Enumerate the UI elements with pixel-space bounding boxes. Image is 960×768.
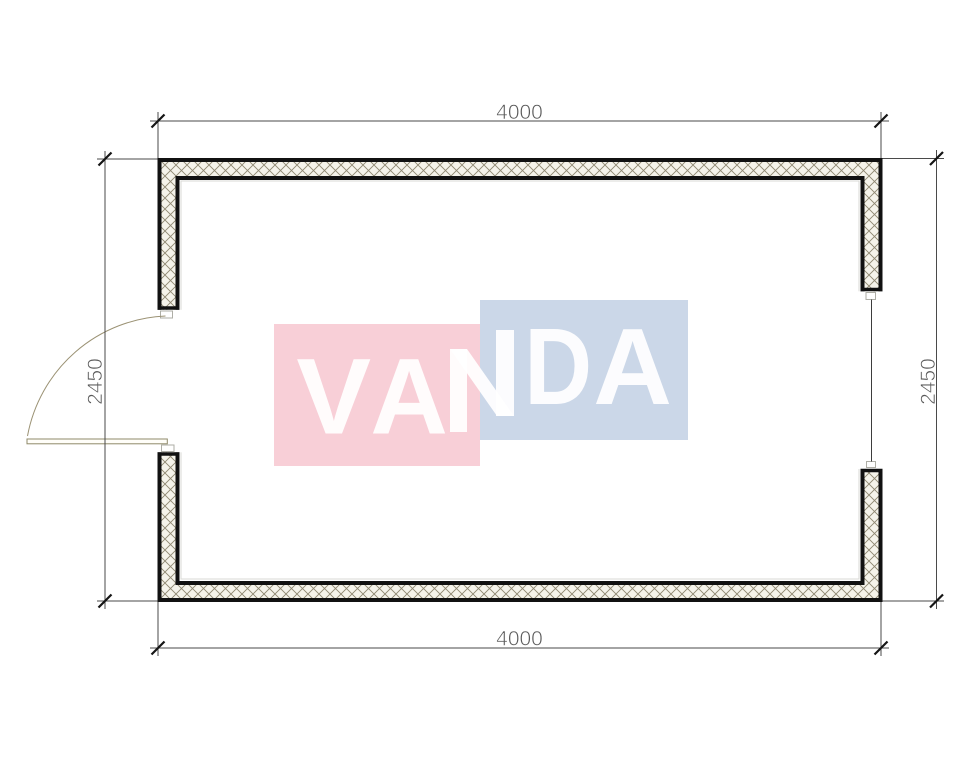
svg-text:4000: 4000 (496, 101, 543, 124)
svg-text:A: A (370, 337, 448, 457)
svg-text:4000: 4000 (496, 628, 543, 651)
svg-text:A: A (593, 306, 672, 428)
svg-text:D: D (524, 305, 592, 427)
svg-text:V: V (296, 337, 371, 457)
svg-text:2450: 2450 (84, 358, 107, 405)
svg-text:2450: 2450 (917, 358, 940, 405)
